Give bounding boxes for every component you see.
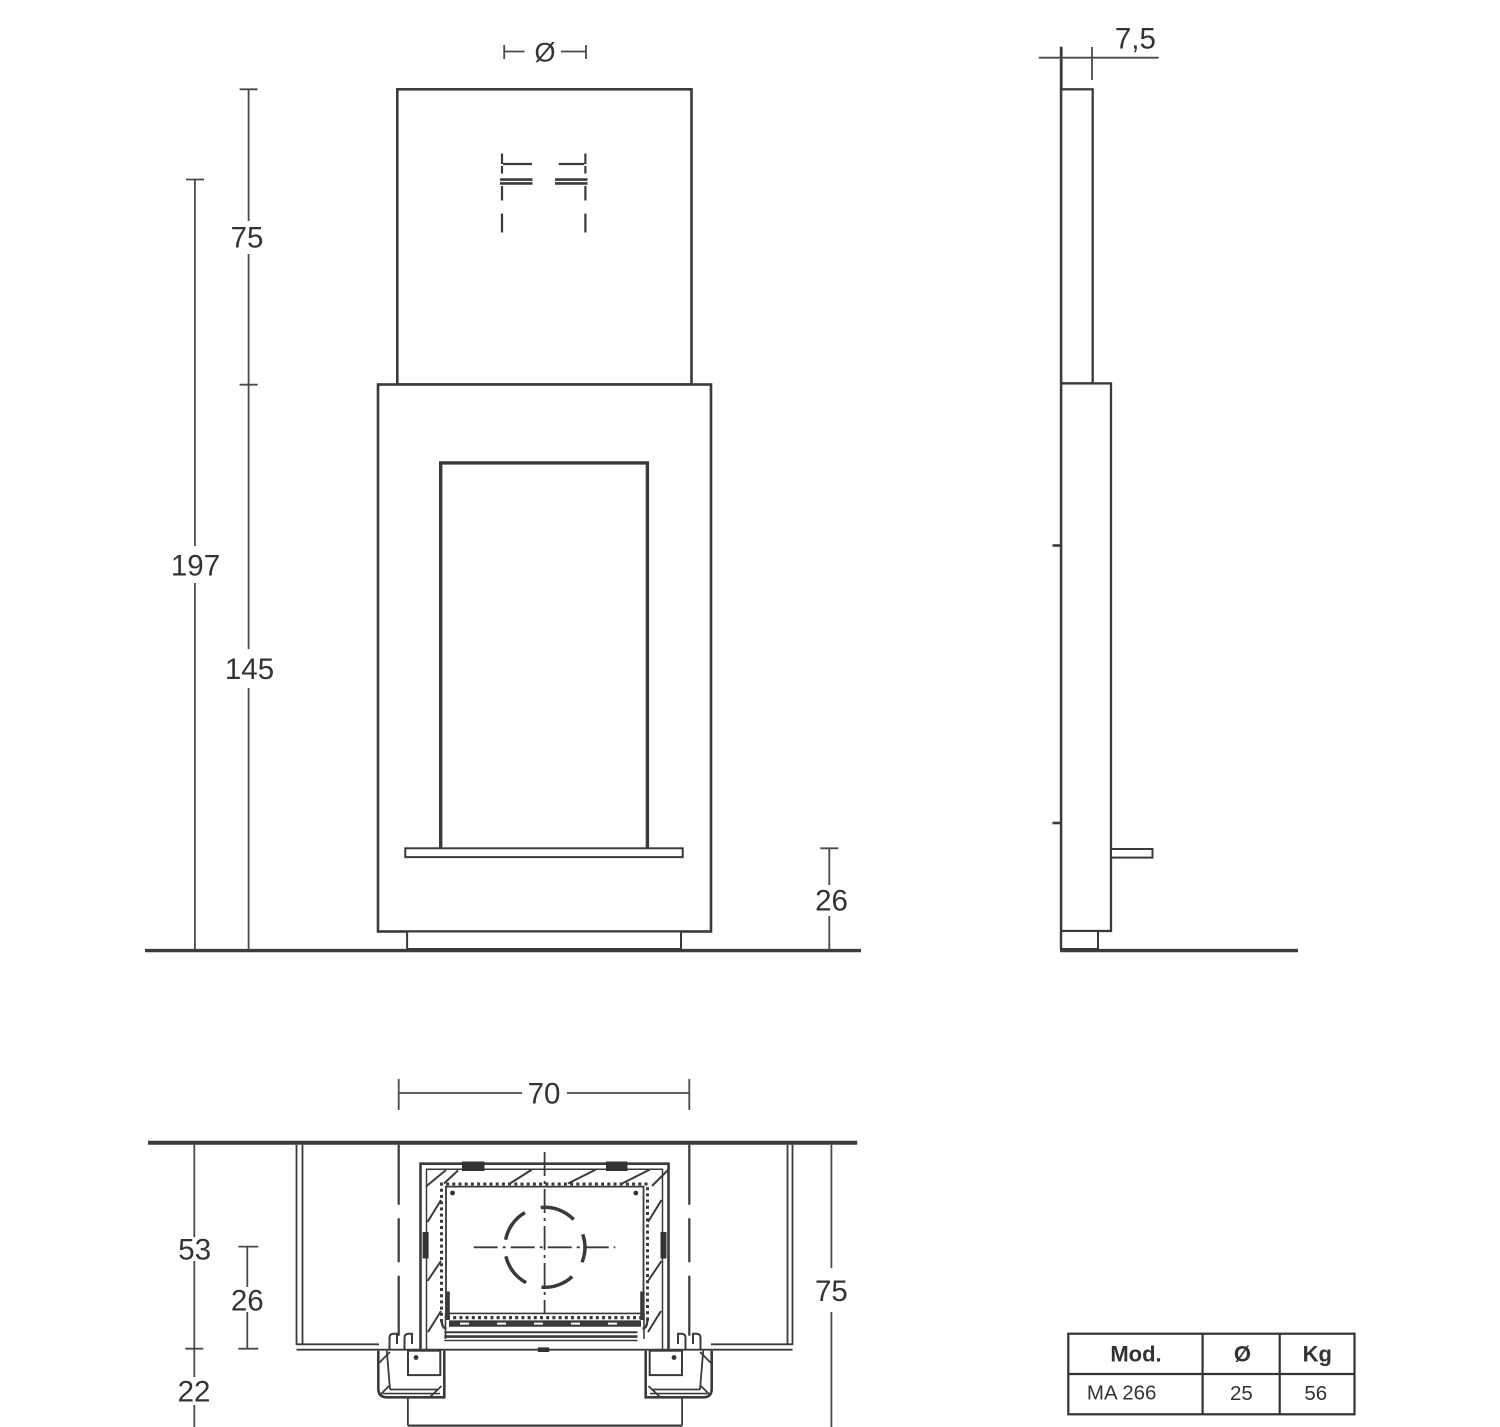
svg-text:26: 26 <box>231 1284 264 1317</box>
svg-text:145: 145 <box>225 653 274 686</box>
svg-text:70: 70 <box>528 1077 561 1110</box>
svg-text:75: 75 <box>231 222 264 255</box>
svg-text:7,5: 7,5 <box>1115 23 1156 56</box>
svg-text:Ø: Ø <box>534 38 555 68</box>
svg-text:26: 26 <box>815 885 848 918</box>
svg-text:Kg: Kg <box>1303 1341 1332 1366</box>
svg-text:Ø: Ø <box>1234 1342 1251 1367</box>
svg-text:75: 75 <box>815 1275 848 1308</box>
svg-text:56: 56 <box>1304 1382 1327 1405</box>
svg-text:53: 53 <box>178 1233 211 1266</box>
svg-text:25: 25 <box>1230 1382 1253 1405</box>
svg-text:22: 22 <box>178 1376 211 1409</box>
svg-text:MA 266: MA 266 <box>1087 1382 1157 1405</box>
svg-text:197: 197 <box>171 550 220 583</box>
svg-text:Mod.: Mod. <box>1110 1341 1161 1366</box>
